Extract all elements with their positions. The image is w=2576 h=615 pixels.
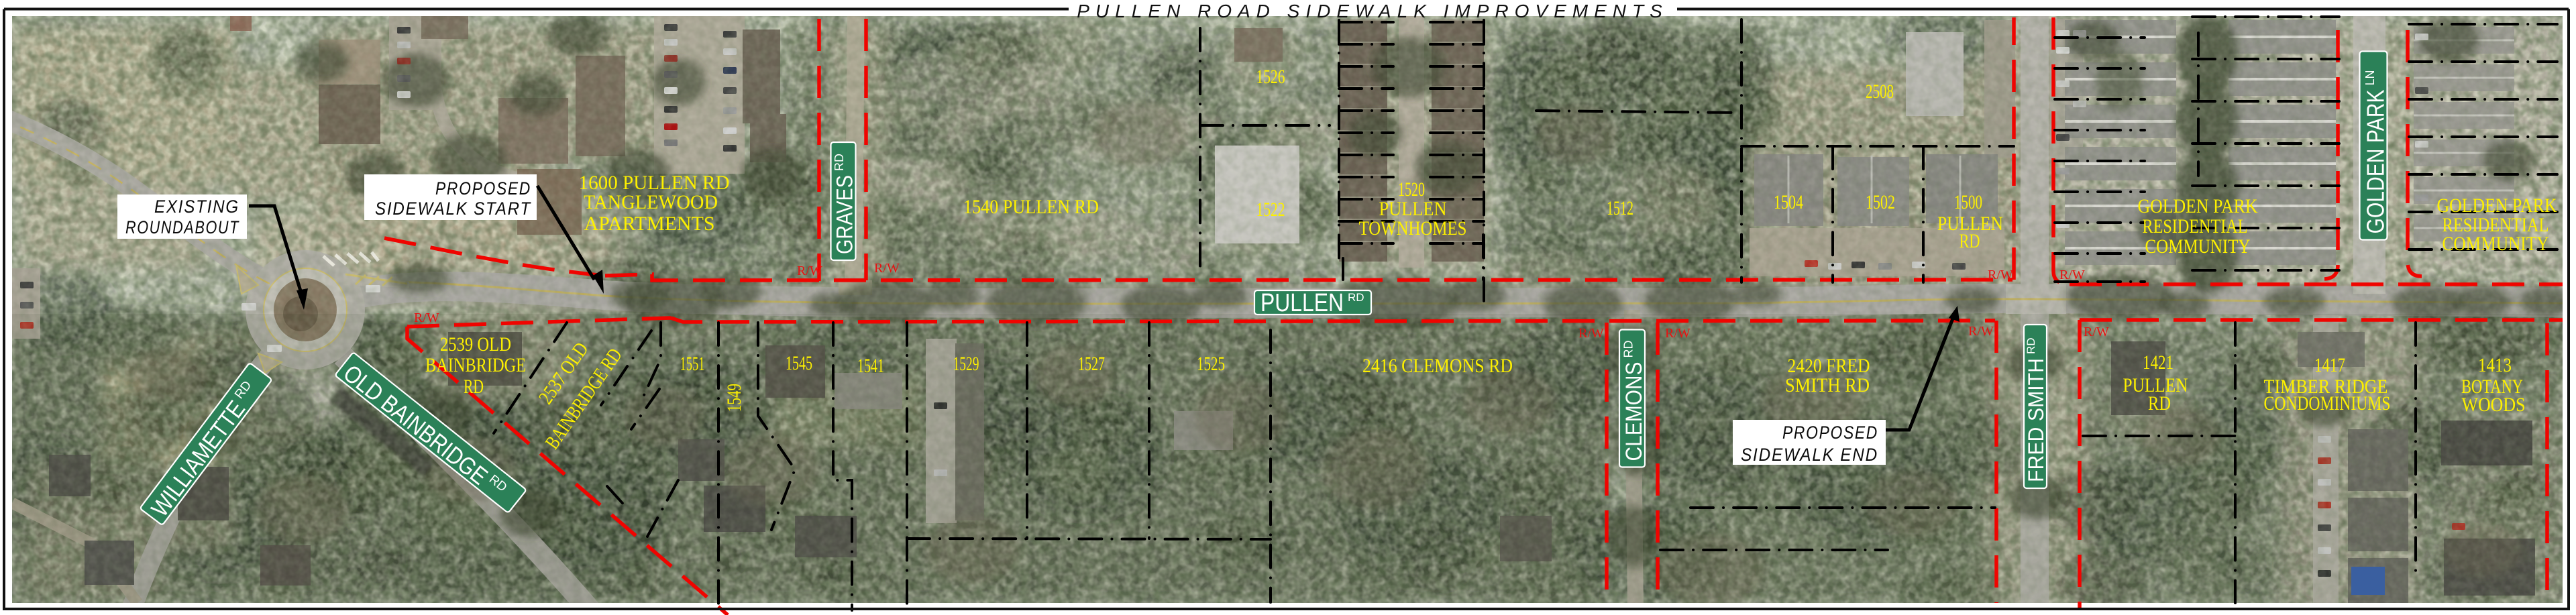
svg-text:PULLEN ROAD SIDEWALK IMPROVEME: PULLEN ROAD SIDEWALK IMPROVEMENTS bbox=[1077, 1, 1668, 21]
svg-text:1527: 1527 bbox=[1078, 353, 1105, 375]
svg-text:RD: RD bbox=[2148, 392, 2171, 414]
svg-text:TANGLEWOOD: TANGLEWOOD bbox=[584, 191, 718, 213]
svg-text:1522: 1522 bbox=[1256, 199, 1285, 221]
svg-text:R/W: R/W bbox=[1988, 268, 2013, 282]
svg-text:PULLEN: PULLEN bbox=[1260, 289, 1344, 317]
svg-text:ROUNDABOUT: ROUNDABOUT bbox=[125, 217, 239, 237]
svg-text:1551: 1551 bbox=[680, 353, 705, 375]
svg-text:R/W: R/W bbox=[2059, 268, 2085, 282]
svg-text:1545: 1545 bbox=[786, 352, 812, 374]
svg-text:TOWNHOMES: TOWNHOMES bbox=[1359, 217, 1467, 239]
svg-text:1417: 1417 bbox=[2314, 354, 2345, 376]
svg-text:R/W: R/W bbox=[2084, 325, 2109, 339]
svg-text:1526: 1526 bbox=[1256, 66, 1285, 88]
svg-text:WOODS: WOODS bbox=[2462, 394, 2526, 416]
svg-text:CLEMONS: CLEMONS bbox=[1621, 362, 1647, 461]
svg-text:R/W: R/W bbox=[874, 261, 900, 276]
svg-text:1421: 1421 bbox=[2143, 351, 2173, 374]
svg-text:2508: 2508 bbox=[1866, 80, 1894, 103]
svg-text:GOLDEN PARK: GOLDEN PARK bbox=[2138, 195, 2258, 217]
svg-text:1549: 1549 bbox=[723, 384, 745, 412]
svg-text:PROPOSED: PROPOSED bbox=[1782, 423, 1878, 443]
svg-text:BAINBRIDGE: BAINBRIDGE bbox=[425, 354, 526, 376]
svg-text:GOLDEN PARK: GOLDEN PARK bbox=[2362, 90, 2390, 234]
svg-text:RD: RD bbox=[1621, 341, 1635, 358]
svg-text:RESIDENTIAL: RESIDENTIAL bbox=[2143, 215, 2248, 237]
svg-text:SIDEWALK END: SIDEWALK END bbox=[1741, 445, 1878, 465]
svg-text:APARTMENTS: APARTMENTS bbox=[584, 213, 715, 235]
svg-text:RD: RD bbox=[464, 376, 484, 398]
svg-text:CONDOMINIUMS: CONDOMINIUMS bbox=[2264, 392, 2391, 414]
svg-text:R/W: R/W bbox=[797, 264, 822, 278]
svg-text:R/W: R/W bbox=[1578, 326, 1604, 341]
svg-text:1525: 1525 bbox=[1197, 353, 1225, 375]
svg-text:1502: 1502 bbox=[1866, 191, 1895, 213]
svg-text:FRED SMITH: FRED SMITH bbox=[2024, 358, 2048, 482]
svg-text:LN: LN bbox=[2363, 70, 2377, 85]
svg-text:R/W: R/W bbox=[1665, 326, 1690, 341]
svg-text:1504: 1504 bbox=[1774, 191, 1803, 213]
svg-text:R/W: R/W bbox=[1968, 324, 1994, 339]
svg-text:1541: 1541 bbox=[857, 355, 884, 377]
svg-text:PROPOSED: PROPOSED bbox=[435, 178, 531, 199]
svg-text:COMMUNITY: COMMUNITY bbox=[2145, 235, 2251, 258]
svg-text:1413: 1413 bbox=[2478, 354, 2512, 376]
svg-text:1540 PULLEN RD: 1540 PULLEN RD bbox=[963, 196, 1099, 218]
svg-text:RD: RD bbox=[1348, 291, 1364, 304]
svg-text:COMMUNITY: COMMUNITY bbox=[2443, 233, 2549, 255]
svg-text:2539 OLD: 2539 OLD bbox=[440, 333, 511, 355]
svg-text:SMITH RD: SMITH RD bbox=[1785, 374, 1870, 396]
svg-text:SIDEWALK START: SIDEWALK START bbox=[375, 199, 531, 219]
svg-text:R/W: R/W bbox=[414, 311, 439, 325]
svg-text:RD: RD bbox=[833, 154, 846, 171]
svg-text:2416 CLEMONS RD: 2416 CLEMONS RD bbox=[1362, 355, 1513, 377]
svg-text:1529: 1529 bbox=[953, 353, 979, 375]
svg-text:RD: RD bbox=[2025, 337, 2037, 354]
svg-text:GRAVES: GRAVES bbox=[833, 175, 858, 254]
svg-text:EXISTING: EXISTING bbox=[154, 197, 239, 217]
svg-text:1500: 1500 bbox=[1954, 191, 1982, 213]
svg-text:1512: 1512 bbox=[1607, 197, 1633, 219]
svg-text:RD: RD bbox=[1960, 230, 1980, 252]
